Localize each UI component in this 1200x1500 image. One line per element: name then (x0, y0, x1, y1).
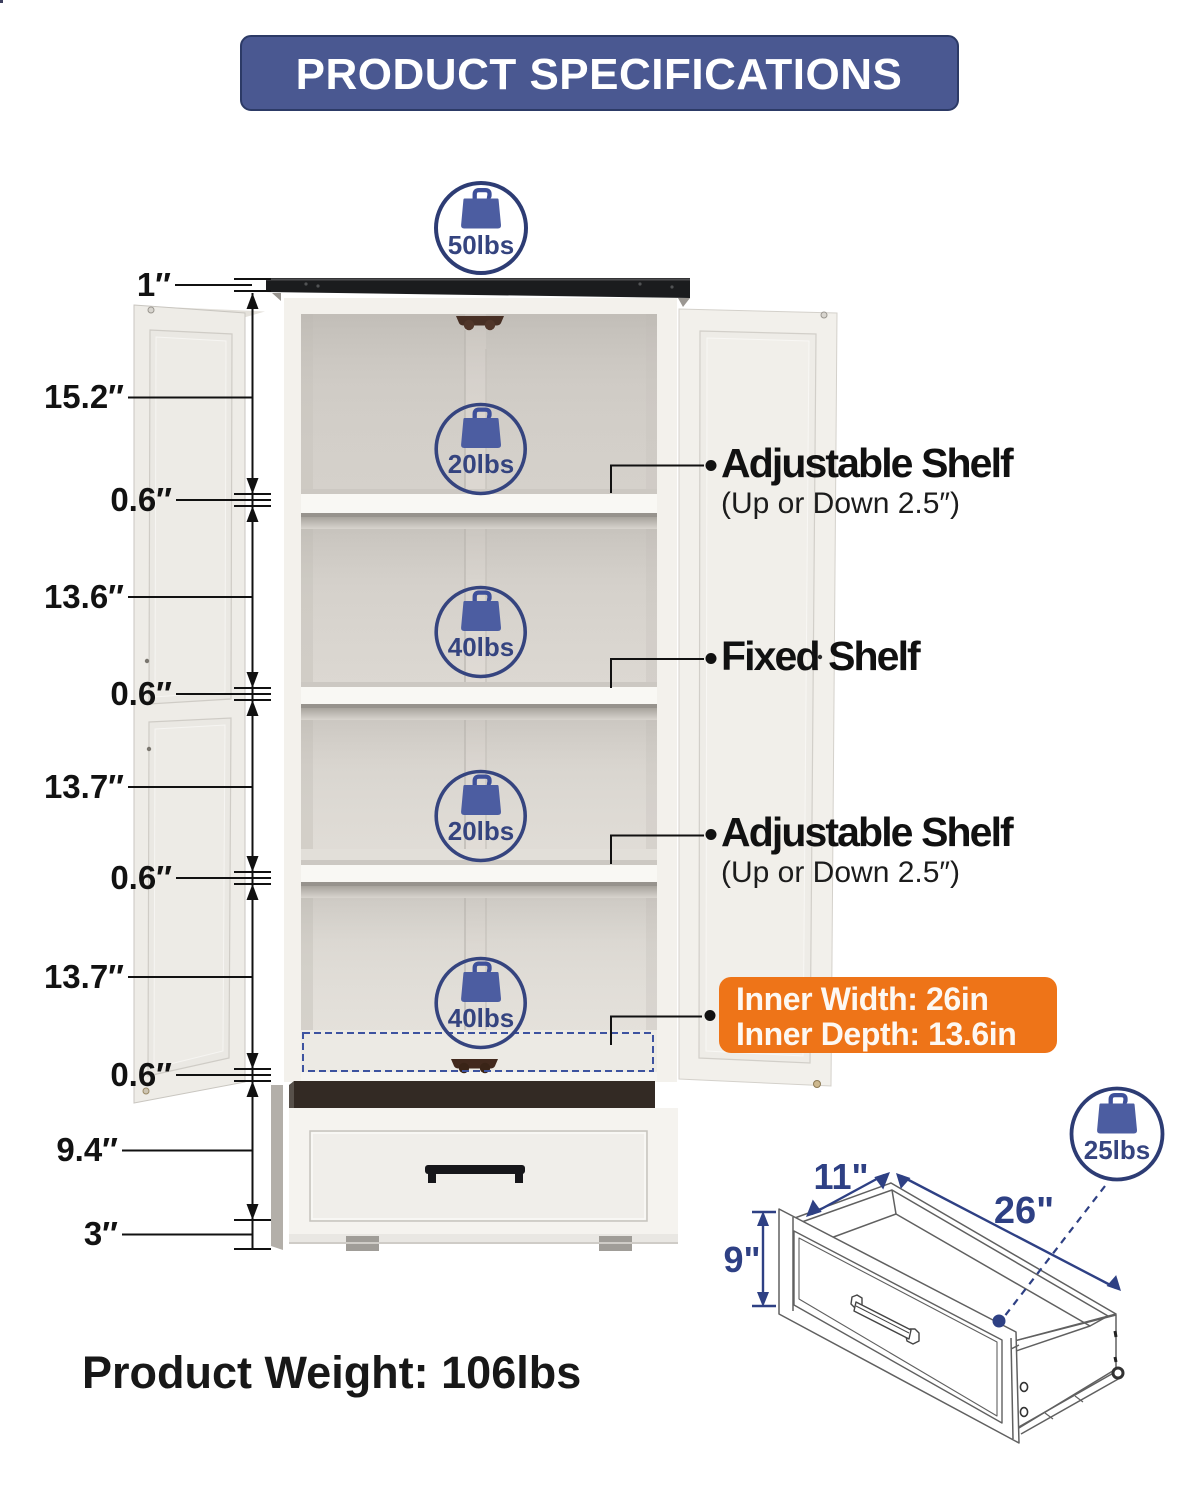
svg-text:11": 11" (813, 1156, 868, 1197)
svg-text:PRODUCT SPECIFICATIONS: PRODUCT SPECIFICATIONS (296, 50, 903, 99)
svg-text:Inner Depth: 13.6in: Inner Depth: 13.6in (736, 1016, 1016, 1052)
svg-text:13.6″: 13.6″ (44, 578, 124, 615)
svg-text:Adjustable Shelf: Adjustable Shelf (721, 809, 1014, 855)
svg-text:20lbs: 20lbs (448, 816, 515, 846)
svg-text:Inner Width: 26in: Inner Width: 26in (736, 981, 988, 1017)
svg-text:9": 9" (723, 1239, 760, 1280)
svg-text:15.2″: 15.2″ (44, 378, 124, 415)
svg-text:1″: 1″ (137, 266, 171, 303)
svg-text:20lbs: 20lbs (448, 449, 515, 479)
svg-text:0.6″: 0.6″ (110, 481, 172, 518)
svg-text:9.4″: 9.4″ (56, 1131, 118, 1168)
svg-text:50lbs: 50lbs (448, 230, 515, 260)
svg-text:3″: 3″ (84, 1215, 118, 1252)
svg-text:Fixed Shelf: Fixed Shelf (721, 633, 921, 679)
svg-text:0.6″: 0.6″ (110, 675, 172, 712)
svg-text:13.7″: 13.7″ (44, 768, 124, 805)
svg-text:26": 26" (994, 1190, 1054, 1232)
svg-text:Adjustable Shelf: Adjustable Shelf (721, 440, 1014, 486)
svg-text:(Up or Down 2.5″): (Up or Down 2.5″) (721, 856, 960, 889)
svg-text:(Up or Down 2.5″): (Up or Down 2.5″) (721, 487, 960, 520)
svg-text:40lbs: 40lbs (448, 632, 515, 662)
svg-text:0.6″: 0.6″ (110, 859, 172, 896)
svg-text:0.6″: 0.6″ (110, 1056, 172, 1093)
svg-text:25lbs: 25lbs (1084, 1135, 1151, 1165)
svg-text:13.7″: 13.7″ (44, 958, 124, 995)
svg-text:Product Weight: 106lbs: Product Weight: 106lbs (82, 1347, 581, 1398)
svg-text:40lbs: 40lbs (448, 1003, 515, 1033)
